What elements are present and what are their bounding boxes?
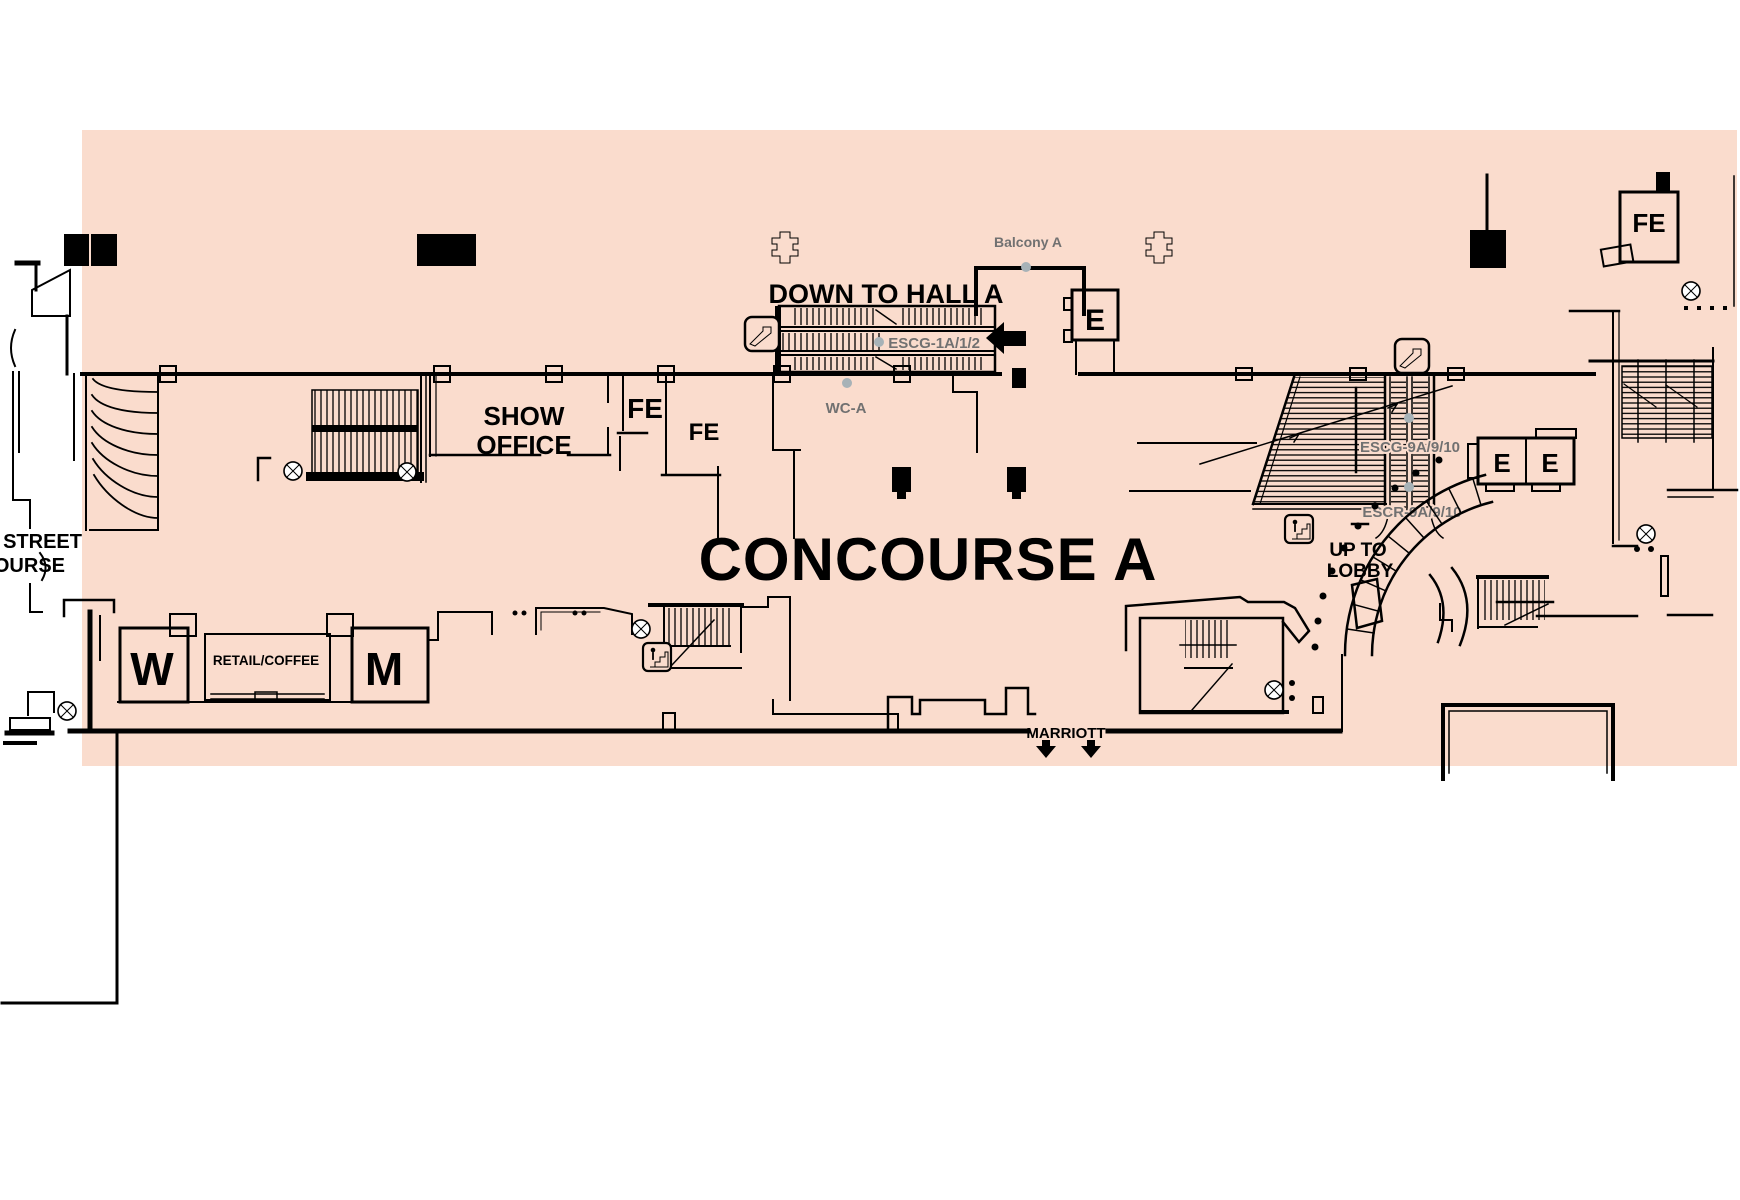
concourse-edge-label: OURSE <box>0 555 65 577</box>
elevator-label: E <box>1541 448 1558 478</box>
womens-restroom-label: W <box>130 643 174 695</box>
floor-plan-page: Balcony A DOWN TO HALL A ESCG-1A/1/2 E <box>0 0 1740 1200</box>
concourse-a-floor-plan: Balcony A DOWN TO HALL A ESCG-1A/1/2 E <box>0 0 1740 1200</box>
elevator-label: E <box>1085 304 1105 337</box>
escg-1a-label: ESCG-1A/1/2 <box>888 335 980 352</box>
escg-9a-label: ESCG-9A/9/10 <box>1360 439 1460 456</box>
fire-extinguisher-label: FE <box>627 393 663 424</box>
retail-coffee-label: RETAIL/COFFEE <box>213 653 319 668</box>
quadrant-circle-icon <box>284 462 302 480</box>
reference-dot <box>1404 482 1414 492</box>
show-office-label-line2: OFFICE <box>476 430 571 460</box>
quadrant-circle-icon <box>398 463 416 481</box>
escalator-icon <box>1395 339 1429 373</box>
page-title: CONCOURSE A <box>699 526 1158 593</box>
quadrant-circle-icon <box>1682 282 1700 300</box>
reference-dot <box>874 337 884 347</box>
fire-extinguisher-label: FE <box>1632 208 1665 238</box>
quadrant-circle-icon <box>1265 681 1283 699</box>
elevator-label: E <box>1493 448 1510 478</box>
reference-dot <box>842 378 852 388</box>
wc-a-label: WC-A <box>826 400 867 417</box>
marriott-exit-label: MARRIOTT <box>1026 725 1105 742</box>
quadrant-circle-icon <box>1637 525 1655 543</box>
street-edge-label: STREET <box>3 531 82 553</box>
stairs-icon <box>643 643 671 671</box>
down-to-hall-a-label: DOWN TO HALL A <box>769 279 1004 309</box>
fire-extinguisher-label: FE <box>689 419 720 446</box>
escalator-icon <box>745 317 779 351</box>
quadrant-circle-icon <box>58 702 76 720</box>
balcony-a-label: Balcony A <box>994 234 1062 250</box>
reference-dot <box>1404 413 1414 423</box>
reference-dot <box>1021 262 1031 272</box>
mens-restroom-label: M <box>365 643 403 695</box>
stairs-icon <box>1285 515 1313 543</box>
quadrant-circle-icon <box>632 620 650 638</box>
show-office-label-line1: SHOW <box>484 401 565 431</box>
